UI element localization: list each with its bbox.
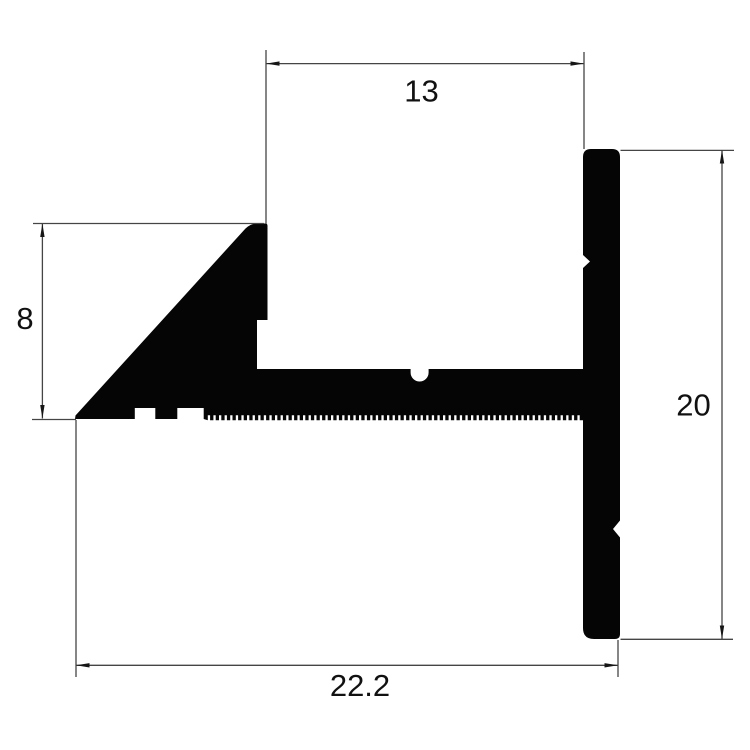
svg-text:20: 20: [676, 387, 710, 422]
svg-text:13: 13: [404, 74, 438, 109]
svg-text:22.2: 22.2: [330, 668, 390, 703]
svg-text:8: 8: [16, 301, 33, 336]
